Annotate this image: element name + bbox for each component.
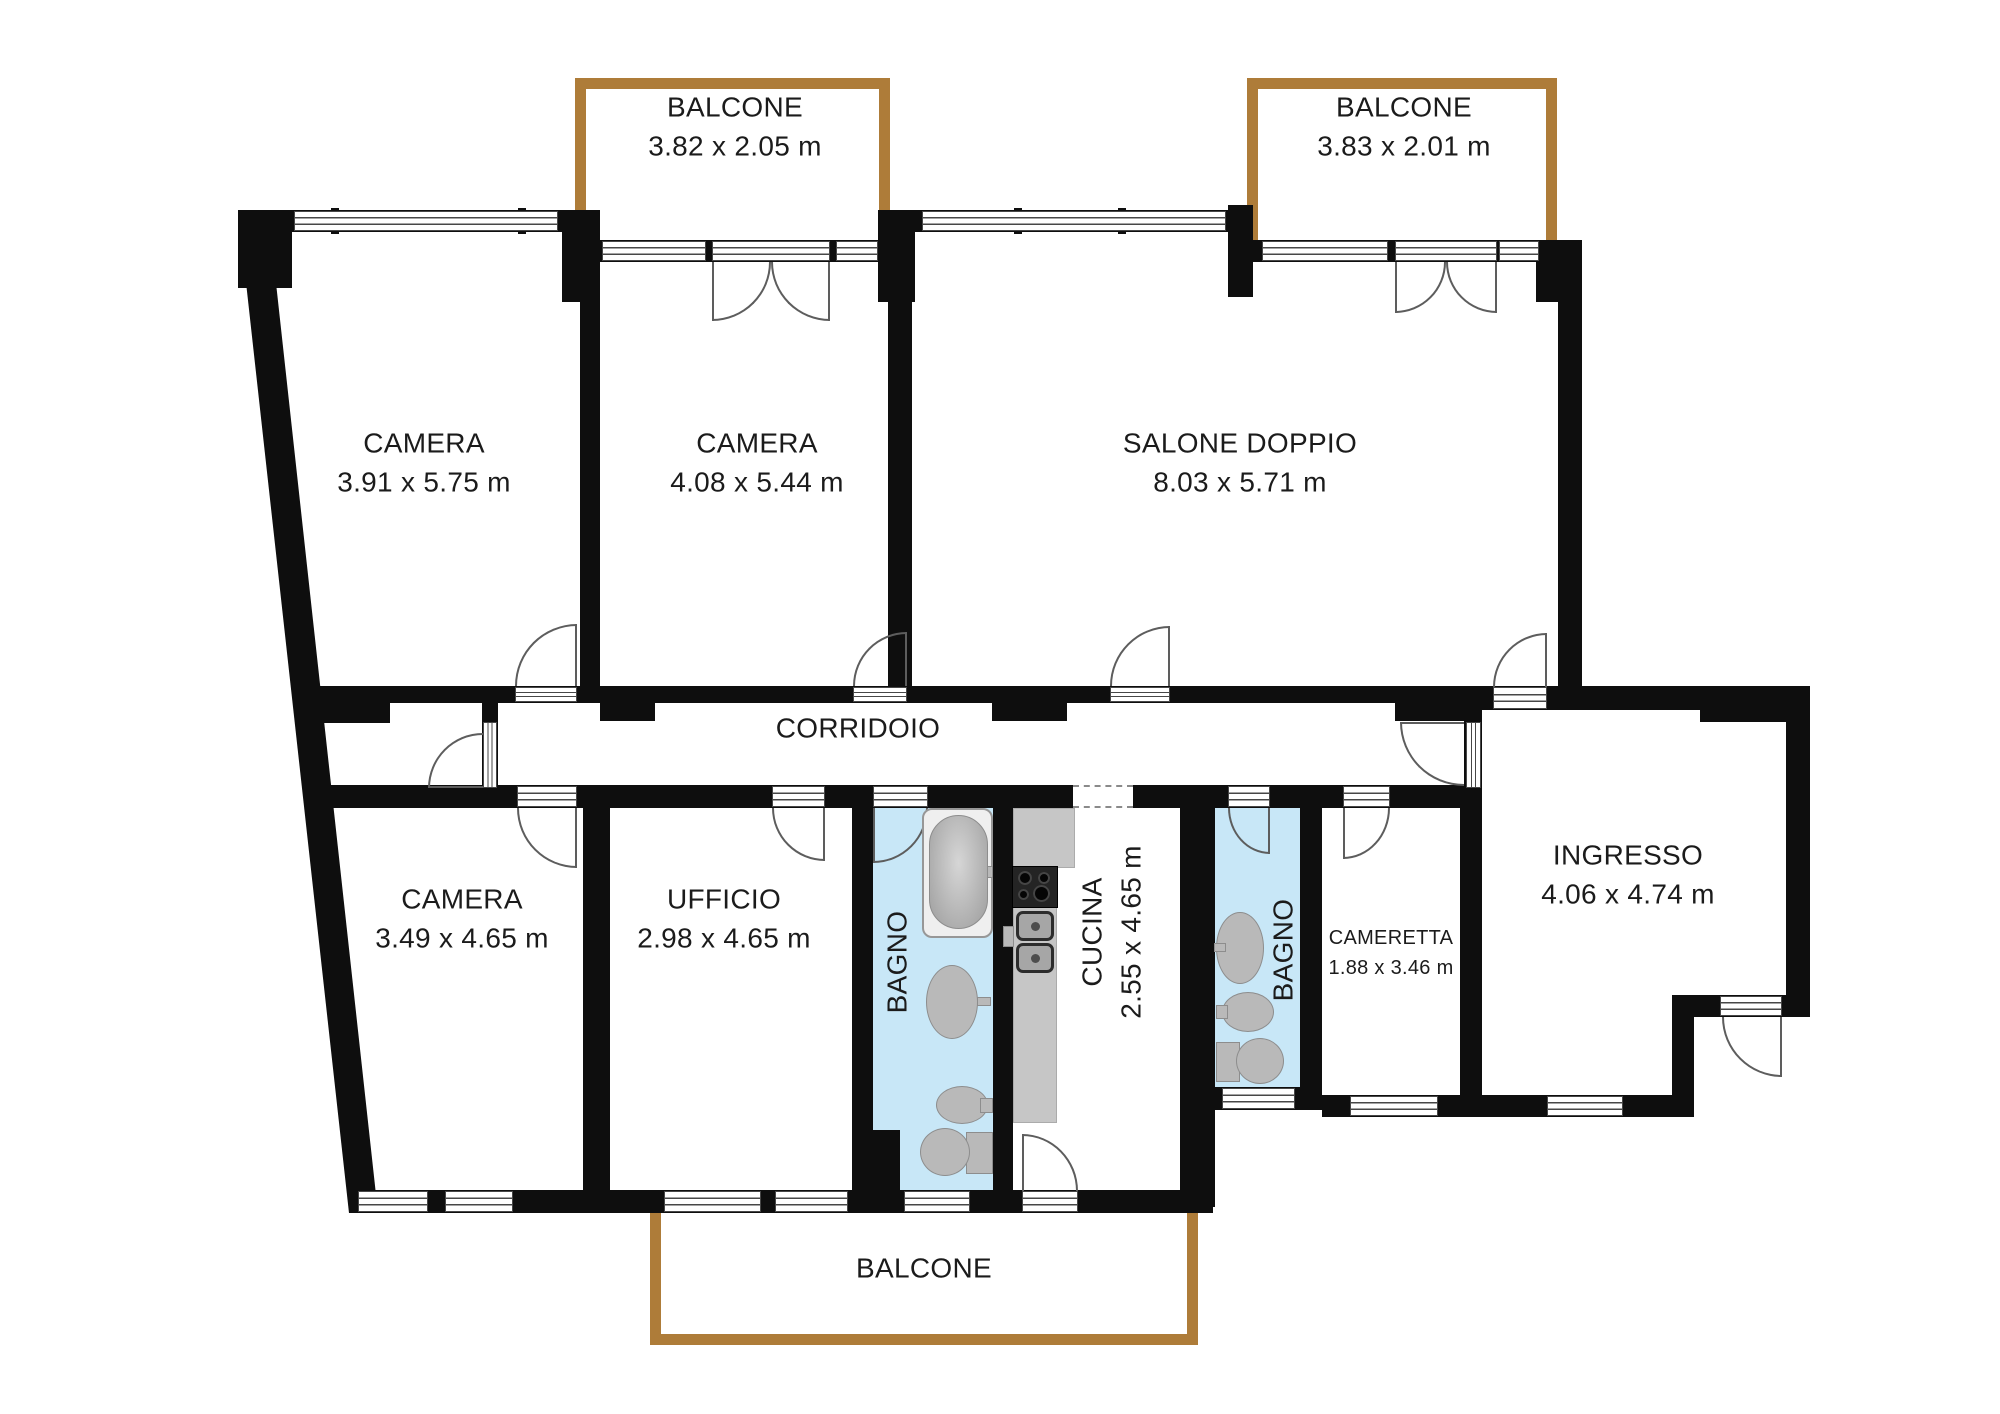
room-dims: 3.91 x 5.75 m (337, 466, 511, 497)
door-camera2 (853, 687, 907, 702)
door-cucina-balcone (1022, 1191, 1078, 1212)
door-camera3-swing (517, 808, 577, 868)
room-name: CAMERA (401, 883, 523, 914)
toilet-icon (1236, 1038, 1284, 1084)
door-cucina-balcone-swing (1022, 1134, 1078, 1191)
room-name: BALCONE (1336, 91, 1472, 122)
room-label-cucina: CUCINA 2.55 x 4.65 m (1073, 845, 1150, 1019)
door-vestibule-swing (428, 733, 483, 788)
door-ufficio-swing (772, 808, 825, 861)
wall-pillar (992, 703, 1067, 721)
window-bagno2-bottom (1222, 1088, 1295, 1109)
room-name: CORRIDOIO (776, 713, 940, 744)
stove-burner-icon (1033, 885, 1050, 902)
bidet-spout-icon (980, 1098, 993, 1113)
kitchen-faucet-icon (1003, 926, 1014, 947)
french-door-camera2-right-leaf (828, 262, 830, 321)
window-bagno1-bottom (904, 1191, 970, 1212)
window-camera3-right (445, 1191, 513, 1212)
room-name: UFFICIO (667, 883, 781, 914)
door-ufficio (772, 786, 825, 807)
window-ingresso-bottom (1547, 1096, 1623, 1116)
door-camera1 (515, 687, 577, 702)
door-bagno2-leaf (1268, 808, 1270, 854)
french-door-camera2-left-swing (712, 262, 771, 321)
bathtub-basin-icon (929, 815, 988, 929)
room-name: CAMERETTA (1329, 927, 1454, 949)
window-salone-balcony-left (1262, 241, 1388, 261)
stove-burner-icon (1018, 871, 1032, 885)
door-bagno2 (1228, 786, 1270, 807)
entry-door (1720, 996, 1782, 1016)
washbasin-icon (926, 965, 978, 1039)
wall-band (300, 703, 390, 723)
door-camera2-swing (853, 632, 907, 686)
room-name: SALONE DOPPIO (1123, 427, 1357, 458)
window-salone-balcony-right (1499, 241, 1539, 261)
french-door-salone-left-swing (1395, 262, 1446, 313)
door-vestibule (483, 722, 497, 788)
toilet-icon (920, 1128, 970, 1176)
door-camera3-leaf (575, 808, 577, 868)
toilet-tank-icon (966, 1132, 993, 1174)
room-label-corridoio: CORRIDOIO (776, 710, 940, 749)
wall-bagno1-cucina (993, 785, 1013, 1213)
wall-cucina-bagno2 (1180, 785, 1215, 1207)
door-camera3 (517, 786, 577, 807)
door-ufficio-leaf (823, 808, 825, 861)
window-camera2-right (836, 241, 878, 261)
room-label-camera-bottom: CAMERA 3.49 x 4.65 m (375, 880, 549, 957)
stove-burner-icon (1018, 889, 1029, 900)
room-label-cameretta: CAMERETTA 1.88 x 3.46 m (1328, 923, 1453, 983)
wall-camera2-salone (888, 210, 912, 703)
entry-notch-wall (1672, 995, 1694, 1117)
door-salone-swing (1110, 626, 1170, 686)
kitchen-sink-drain-icon (1031, 922, 1040, 931)
wall-step (1700, 710, 1790, 722)
room-name: INGRESSO (1553, 839, 1703, 870)
window-camera2-left (602, 241, 706, 261)
kitchen-sink-drain-icon (1031, 954, 1040, 963)
room-label-bagno2: BAGNO (1265, 899, 1304, 1002)
stove-burner-icon (1038, 872, 1050, 884)
counter-icon (1013, 808, 1075, 868)
door-corridor-ingresso (1466, 722, 1481, 788)
room-name: CUCINA (1076, 877, 1107, 986)
corridor-top-wall (300, 686, 1582, 703)
room-name: BAGNO (882, 911, 913, 1014)
room-label-balcone-top-left: BALCONE 3.82 x 2.05 m (648, 88, 822, 165)
french-door-camera2-right-swing (771, 262, 830, 321)
room-label-ufficio: UFFICIO 2.98 x 4.65 m (637, 880, 811, 957)
door-corridor-ingresso-leaf (1400, 722, 1464, 724)
room-dims: 3.83 x 2.01 m (1317, 130, 1491, 161)
floor-plan: BALCONE 3.82 x 2.05 m BALCONE 3.83 x 2.0… (0, 0, 2000, 1414)
kitchen-opening (1073, 785, 1133, 808)
door-camera2-leaf (905, 632, 907, 686)
door-salone-leaf (1168, 626, 1170, 686)
wall-pillar (600, 703, 655, 721)
french-door-salone (1395, 241, 1497, 261)
wall-camera1-camera2 (580, 210, 600, 703)
wall-block (1536, 240, 1560, 302)
door-camera1-leaf (575, 624, 577, 686)
french-door-salone-right-leaf (1495, 262, 1497, 313)
room-dims: 1.88 x 3.46 m (1328, 957, 1453, 979)
french-door-salone-left-leaf (1395, 262, 1397, 313)
entry-door-leaf (1780, 1017, 1782, 1077)
washbasin-faucet-icon (1214, 943, 1226, 952)
window-salone-top (922, 211, 1226, 231)
door-cameretta-leaf (1343, 808, 1345, 859)
room-label-ingresso: INGRESSO 4.06 x 4.74 m (1541, 836, 1715, 913)
door-cameretta (1343, 786, 1390, 807)
door-vestibule-leaf (428, 786, 483, 788)
door-salone-ingresso-swing (1493, 633, 1547, 687)
door-cucina-balcone-leaf (1022, 1134, 1024, 1191)
room-label-salone: SALONE DOPPIO 8.03 x 5.71 m (1123, 424, 1357, 501)
room-label-camera-top-left: CAMERA 3.91 x 5.75 m (337, 424, 511, 501)
door-cameretta-swing (1343, 808, 1390, 859)
room-dims: 8.03 x 5.71 m (1153, 466, 1327, 497)
room-name: BALCONE (667, 91, 803, 122)
room-dims: 4.06 x 4.74 m (1541, 878, 1715, 909)
door-bagno1 (873, 786, 928, 807)
room-label-balcone-bottom: BALCONE (856, 1250, 992, 1289)
washbasin-faucet-icon (977, 997, 991, 1006)
wall-camera3-ufficio (583, 785, 610, 1213)
room-label-camera-top-mid: CAMERA 4.08 x 5.44 m (670, 424, 844, 501)
wall-cameretta-ingresso (1460, 785, 1482, 1117)
window-camera3-left (358, 1191, 428, 1212)
french-door-camera2-left-leaf (712, 262, 714, 321)
door-salone-ingresso-leaf (1545, 633, 1547, 687)
window-ufficio-left (664, 1191, 761, 1212)
entry-door-swing (1722, 1017, 1782, 1077)
door-salone-ingresso (1493, 687, 1547, 709)
bidet-spout-icon (1216, 1005, 1228, 1019)
room-name: BALCONE (856, 1253, 992, 1284)
window-ufficio-right (775, 1191, 848, 1212)
room-name: CAMERA (363, 427, 485, 458)
room-dims: 2.98 x 4.65 m (637, 922, 811, 953)
door-corridor-ingresso-swing (1400, 722, 1464, 786)
door-bagno1-leaf (873, 808, 875, 863)
room-dims: 3.49 x 4.65 m (375, 922, 549, 953)
room-dims: 4.08 x 5.44 m (670, 466, 844, 497)
wall-pillar (1395, 703, 1465, 721)
window-cameretta-bottom (1350, 1096, 1438, 1116)
wall-salone-right (1558, 240, 1582, 710)
room-label-balcone-top-right: BALCONE 3.83 x 2.01 m (1317, 88, 1491, 165)
door-camera1-swing (515, 624, 577, 686)
french-door-camera2 (712, 241, 830, 261)
room-dims: 2.55 x 4.65 m (1115, 845, 1146, 1019)
french-door-salone-right-swing (1446, 262, 1497, 313)
window-camera1-top (294, 211, 558, 231)
outer-wall-right (1786, 686, 1810, 1017)
door-salone (1110, 687, 1170, 702)
room-label-bagno1: BAGNO (879, 911, 918, 1014)
room-dims: 3.82 x 2.05 m (648, 130, 822, 161)
room-name: CAMERA (696, 427, 818, 458)
room-name: BAGNO (1268, 899, 1299, 1002)
